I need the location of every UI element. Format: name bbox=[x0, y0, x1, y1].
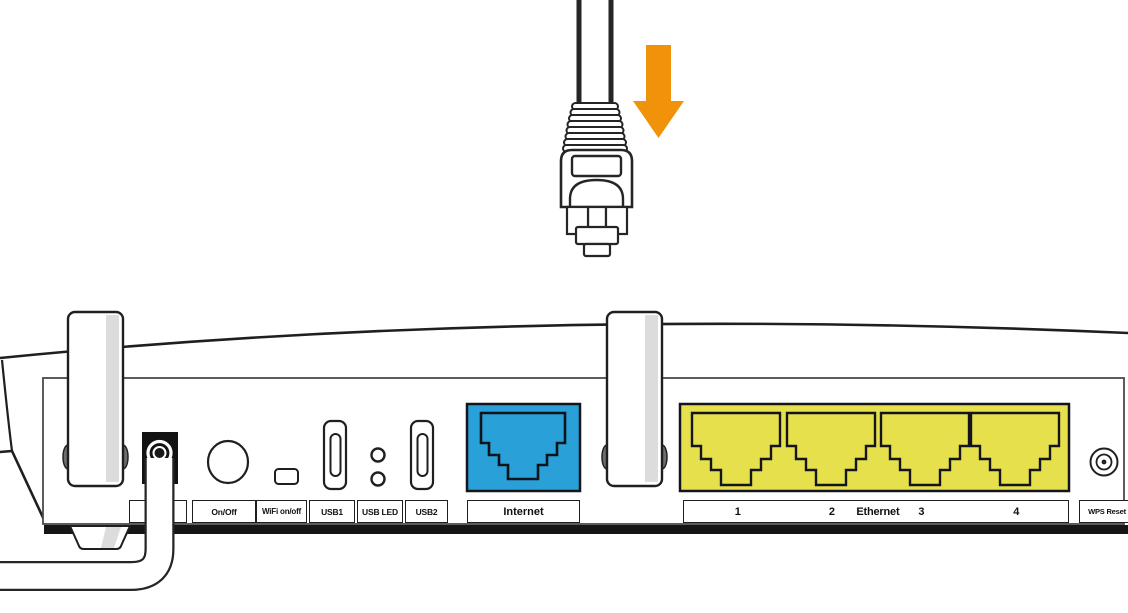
router-setup-illustration: Power On/Off WiFi on/off USB1 USB LED US… bbox=[0, 0, 1128, 613]
power-cable bbox=[0, 458, 160, 576]
power-cable-layer bbox=[0, 0, 1128, 613]
